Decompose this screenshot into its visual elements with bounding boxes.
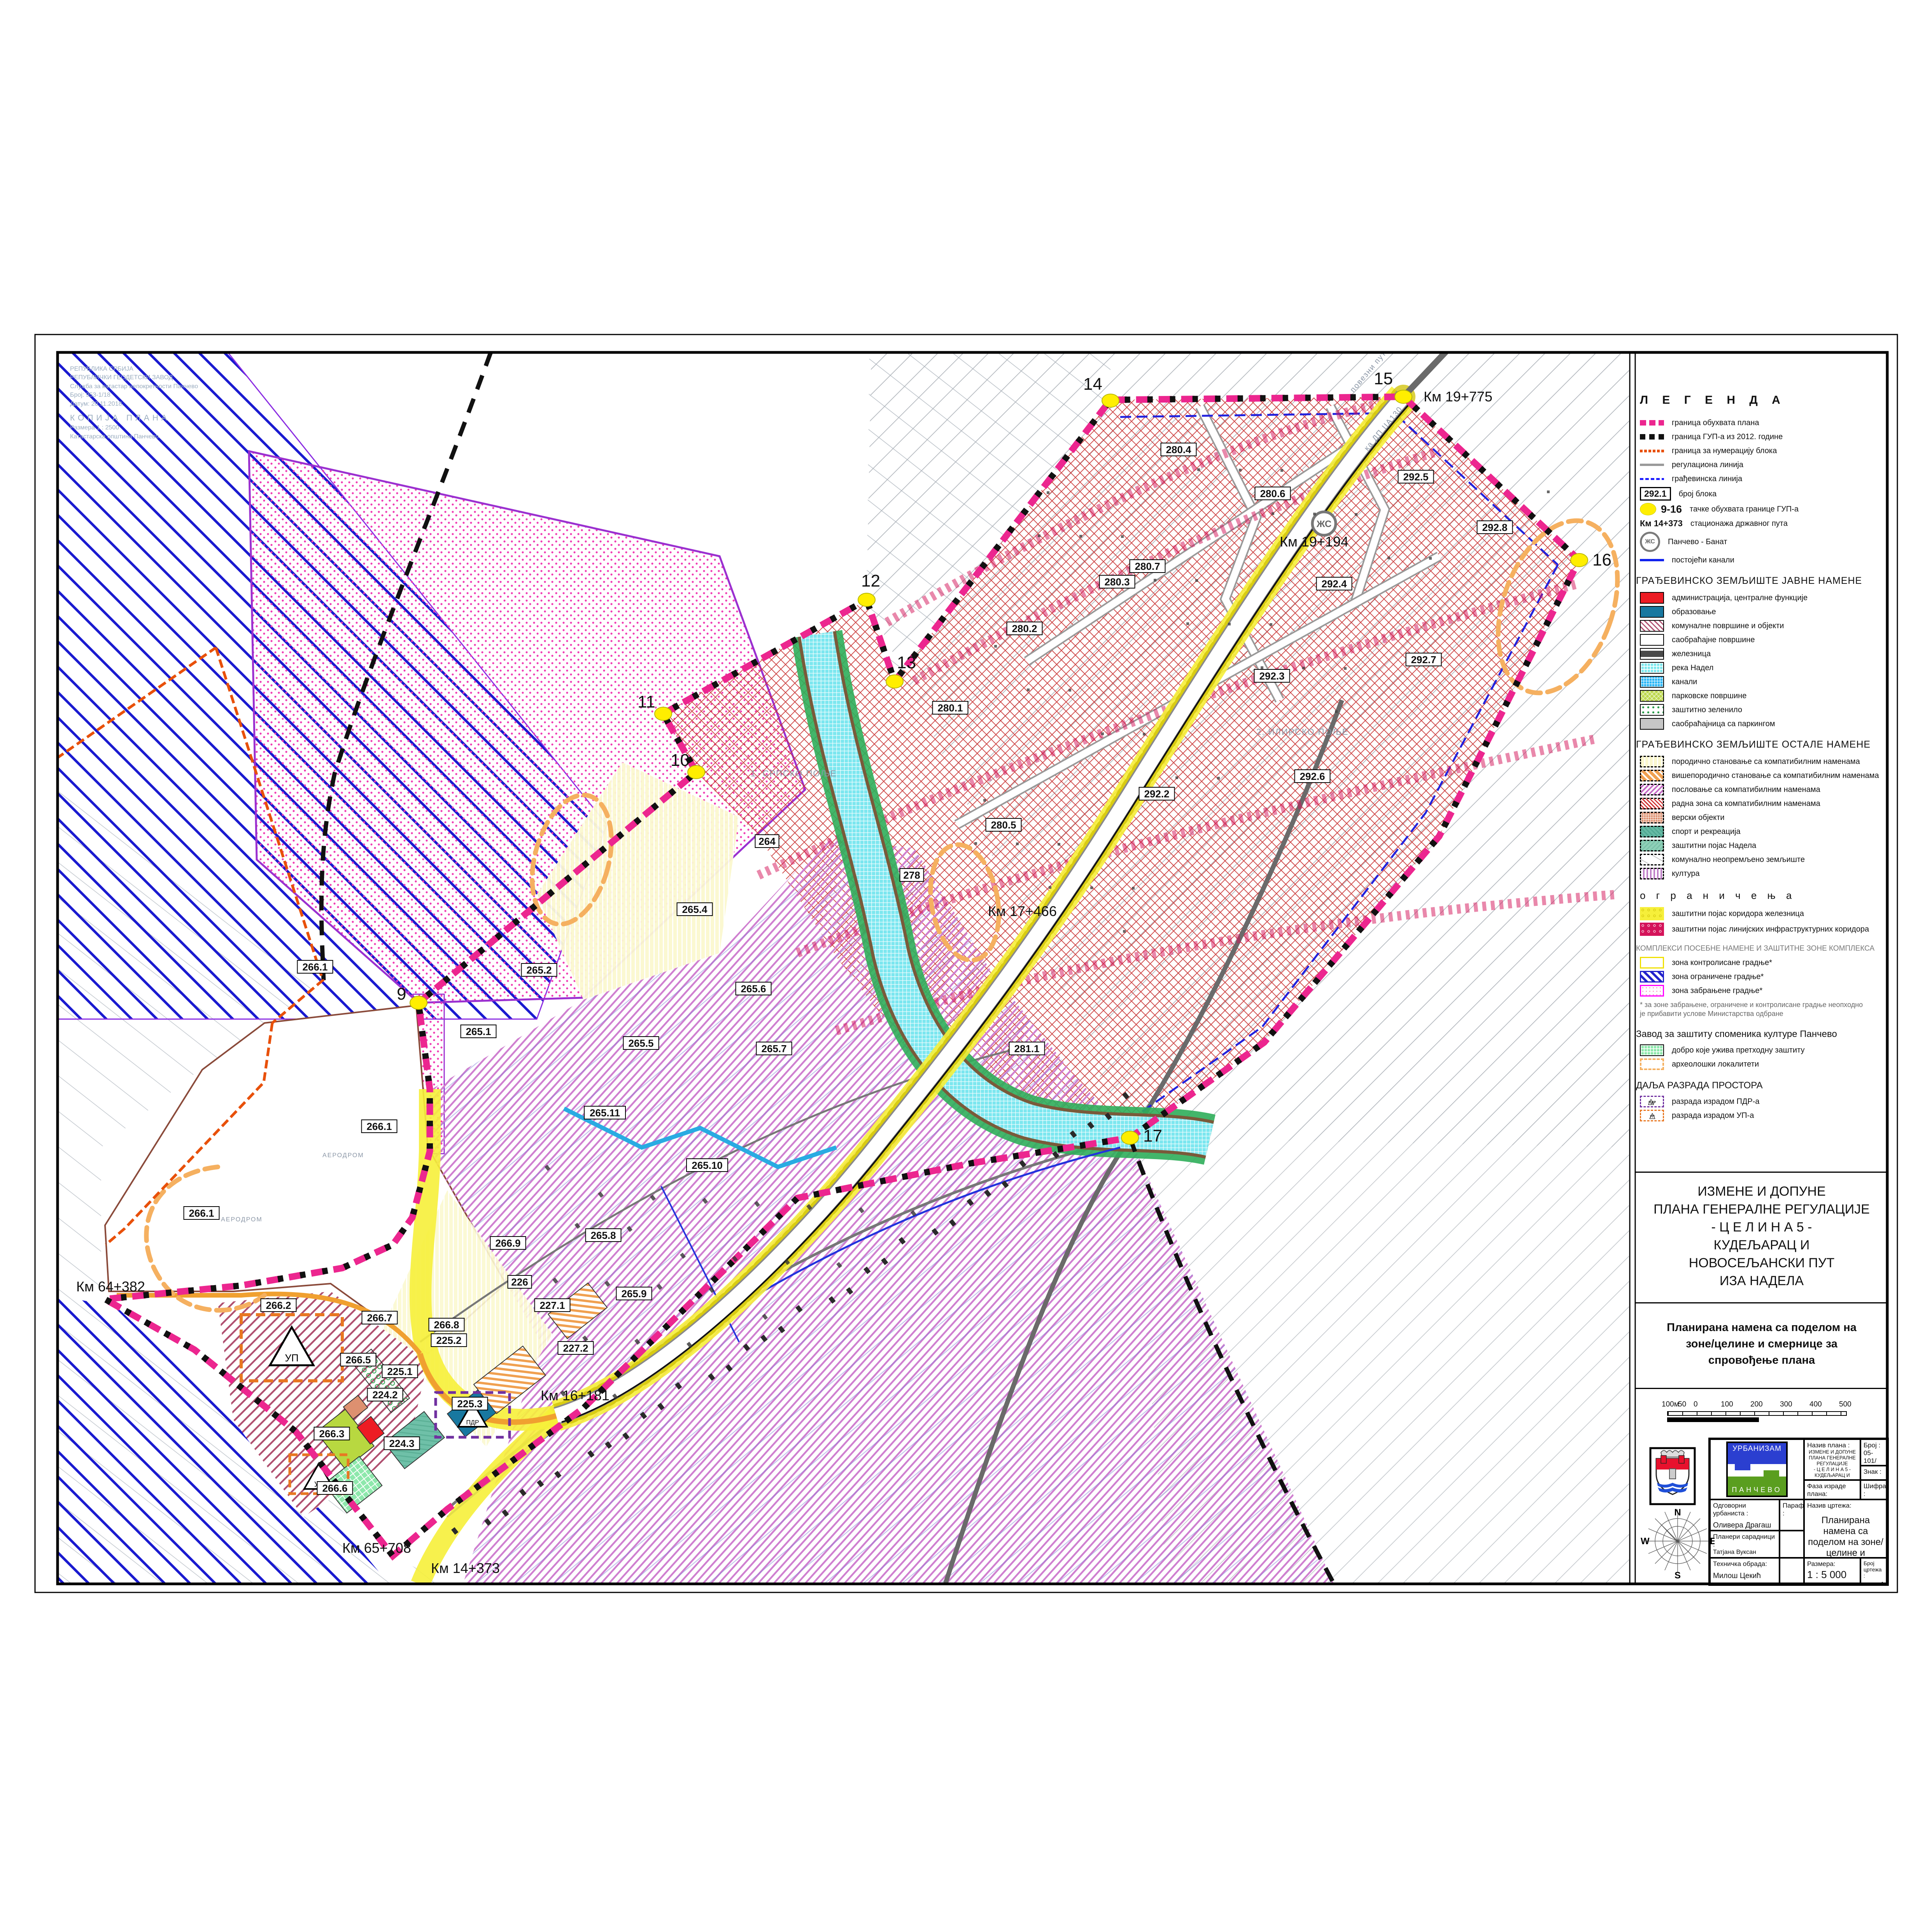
svg-text:292.4: 292.4 (1321, 578, 1347, 590)
legend-item-label: заштитни појас Надела (1672, 841, 1756, 850)
canals-swatch (1640, 676, 1664, 688)
legend-item-label: парковске површине (1672, 692, 1746, 700)
block-numbering-boundary-swatch (1640, 450, 1664, 452)
km-station-label: Км 19+775 (1424, 389, 1492, 405)
svg-text:266.9: 266.9 (495, 1237, 520, 1249)
svg-text:ЖС: ЖС (1316, 519, 1331, 529)
administration-swatch (1640, 592, 1664, 604)
forbidden-construction-zone-swatch (1640, 985, 1664, 997)
legend-swatch-7: Км 14+373 (1640, 518, 1683, 529)
communal-areas-swatch (1640, 620, 1664, 632)
legend-item-label: зона забрањене градње* (1672, 986, 1762, 995)
stamp-line: Служба за катастар непокретности Панчево (70, 382, 272, 391)
work-zone-swatch (1640, 798, 1664, 809)
legend-item-label: железница (1672, 650, 1711, 658)
block-label: 280.2 (1007, 622, 1042, 635)
plan-number: 05-101/ (1864, 1449, 1884, 1465)
area-label: АЕРОДРОМ (322, 1152, 364, 1159)
block-label: 292.5 (1398, 470, 1434, 483)
archaeological-sites-swatch (1640, 1058, 1664, 1070)
stamp-line: Катастарска општина Панчево (70, 433, 272, 441)
scale-bar-solid (1667, 1417, 1759, 1422)
legend-swatch-6 (1640, 503, 1656, 515)
block-label: 265.1 (461, 1025, 496, 1038)
legend-item: 292.1број блока (1640, 487, 1883, 501)
svg-text:224.3: 224.3 (389, 1438, 414, 1449)
technical-name: Милош Цекић (1713, 1572, 1761, 1580)
protective-greenery-swatch (1640, 704, 1664, 716)
svg-text:292.3: 292.3 (1259, 670, 1284, 682)
traffic-areas-swatch (1640, 634, 1664, 646)
scale-value: 1 : 5 000 (1807, 1569, 1857, 1581)
block-label: 227.1 (535, 1299, 570, 1312)
legend-item-label: река Надел (1672, 664, 1713, 672)
technical-cell: Техничка обрада: Милош Цекић инж.арх. (1710, 1558, 1780, 1584)
svg-text:17: 17 (1143, 1126, 1162, 1146)
plan-title-line: ИЗМЕНЕ И ДОПУНЕ (1640, 1182, 1883, 1200)
legend-item-label: администрација, централне функције (1672, 594, 1808, 602)
legend-item: заштитни појас коридора железница (1640, 907, 1883, 920)
svg-text:281.1: 281.1 (1014, 1043, 1039, 1054)
block-label: 265.2 (522, 963, 557, 976)
legend-item: радна зона са компатибилним наменама (1640, 798, 1883, 809)
svg-text:N: N (1674, 1507, 1681, 1518)
block-label: 292.6 (1295, 770, 1330, 783)
block-label: 226 (508, 1275, 532, 1288)
legend-item-label: заштитни појас коридора железница (1672, 909, 1804, 918)
block-label: 225.2 (431, 1334, 467, 1347)
family-housing-swatch (1640, 756, 1664, 767)
area-label: 2. ИЛИРСКО ПОЉЕ (1256, 727, 1349, 737)
legend-item-label: регулациона линија (1672, 461, 1743, 469)
svg-text:265.1: 265.1 (466, 1026, 491, 1037)
legend-item: парковске површине (1640, 690, 1883, 702)
legend-item: комуналне површине и објекти (1640, 620, 1883, 632)
legend-item: заштитни појас линијских инфраструктурни… (1640, 923, 1883, 936)
legend-item: култура (1640, 868, 1883, 879)
legend-item: пословање са компатибилним наменама (1640, 784, 1883, 795)
block-label: 292.4 (1317, 577, 1352, 590)
scale-label: 0 (1694, 1400, 1698, 1409)
svg-text:225.1: 225.1 (387, 1366, 412, 1377)
cadastral-stamp: РЕПУБЛИКА СРБИЈАРЕПУБЛИЧКИ ГЕОДЕТСКИ ЗАВ… (70, 365, 272, 441)
block-label: 292.8 (1477, 521, 1513, 534)
svg-text:266.7: 266.7 (367, 1312, 392, 1324)
svg-text:292.8: 292.8 (1482, 522, 1507, 533)
svg-text:265.7: 265.7 (761, 1043, 786, 1054)
legend-item: зона ограничене градње* (1640, 971, 1883, 983)
svg-text:9: 9 (397, 984, 406, 1004)
up-elaboration-swatch: △УП (1640, 1110, 1664, 1121)
legend-item: саобраћајница са паркингом (1640, 718, 1883, 730)
drawing-title-line: спровођење плана (1640, 1352, 1883, 1368)
legend-item-label: саобраћајне површине (1672, 636, 1755, 644)
gup-2012-boundary-swatch (1640, 434, 1664, 440)
svg-text:266.1: 266.1 (189, 1207, 214, 1219)
stamp-line: РЕПУБЛИЧКИ ГЕОДЕТСКИ ЗАВОД (70, 373, 272, 382)
scale-bar: 100м 50 0 100 200 300 400 500 (1667, 1400, 1850, 1431)
svg-text:11: 11 (638, 692, 655, 711)
legend-item-label: граница ГУП-а из 2012. године (1672, 433, 1783, 441)
legend-item: граница за нумерацију блока (1640, 445, 1883, 457)
block-label: 266.5 (341, 1353, 376, 1366)
legend-item-label: радна зона са компатибилним наменама (1672, 799, 1820, 808)
road-with-parking-swatch (1640, 718, 1664, 730)
logo-cell: УРБАНИЗАМ ПАНЧЕВО (1710, 1439, 1804, 1499)
plan-title-line: ИЗА НАДЕЛА (1640, 1272, 1883, 1290)
scale-label: 400 (1809, 1400, 1822, 1409)
block-label: 225.1 (382, 1365, 418, 1378)
znak-cell: Знак : (1860, 1466, 1887, 1480)
block-label: 265.11 (584, 1106, 625, 1119)
existing-canals-swatch (1640, 559, 1664, 561)
nadel-river-swatch (1640, 662, 1664, 674)
stamp-line: Датум: 20.11.2018. (70, 400, 272, 408)
svg-text:292.2: 292.2 (1144, 788, 1169, 800)
legend-item: археолошки локалитети (1640, 1058, 1883, 1070)
paraf-cell-2 (1780, 1531, 1804, 1558)
area-label: 1. СРПСКО ПОЉЕ (751, 769, 837, 778)
legend-section-title: ДАЉА РАЗРАДА ПРОСТОРА (1636, 1080, 1883, 1091)
legend-item: ЖСПанчево - Банат (1640, 532, 1883, 552)
svg-text:13: 13 (897, 653, 916, 672)
legend-item-label: зона ограничене градње* (1672, 972, 1764, 981)
sifra-cell: Шифра : (1860, 1480, 1887, 1499)
drawing-number-cell: Број цртежа : 4 (1860, 1558, 1887, 1584)
unequipped-communal-land-swatch (1640, 854, 1664, 865)
legend-item: граница ГУП-а из 2012. године (1640, 431, 1883, 443)
block-label: 281.1 (1009, 1042, 1045, 1055)
km-station-label: Км 19+194 (1280, 534, 1349, 550)
block-label: 265.9 (617, 1287, 652, 1300)
block-label: 265.5 (624, 1037, 659, 1049)
svg-text:266.1: 266.1 (302, 961, 328, 973)
svg-text:227.1: 227.1 (539, 1300, 565, 1311)
block-label: 266.8 (429, 1318, 464, 1331)
legend-item-label: тачке обухвата границе ГУП-а (1690, 505, 1799, 513)
svg-text:265.4: 265.4 (682, 904, 708, 915)
legend-item-label: Панчево - Банат (1668, 538, 1727, 546)
legend-item-label: комуналне површине и објекти (1672, 622, 1784, 630)
svg-text:225.2: 225.2 (436, 1335, 461, 1346)
svg-text:278: 278 (903, 869, 920, 881)
responsible-planner-name: Оливера Драгаш (1713, 1521, 1771, 1529)
block-label: 265.4 (677, 903, 713, 916)
block-label: 264 (755, 835, 779, 848)
svg-text:16: 16 (1592, 550, 1611, 569)
svg-text:280.6: 280.6 (1260, 488, 1285, 499)
area-label: АЕРОДРОМ (221, 1216, 263, 1223)
plan-title-line: - Ц Е Л И Н А 5 - (1640, 1218, 1883, 1236)
block-label: 265.10 (687, 1159, 728, 1172)
protected-heritage-swatch (1640, 1044, 1664, 1056)
legend-item-label: породично становање са компатибилним нам… (1672, 757, 1860, 766)
legend-item: железница (1640, 648, 1883, 660)
logo-top-text: УРБАНИЗАМ (1728, 1443, 1786, 1464)
svg-text:10: 10 (671, 751, 690, 770)
svg-text:280.3: 280.3 (1104, 576, 1130, 588)
legend-item-label: постојећи канали (1672, 556, 1734, 564)
svg-text:266.1: 266.1 (366, 1121, 392, 1132)
svg-text:280.1: 280.1 (937, 702, 963, 714)
legend-panel: Л Е Г Е Н Д А граница обухвата планагран… (1640, 394, 1883, 1124)
km-station-label: Км 16+181 (541, 1387, 610, 1403)
svg-text:280.2: 280.2 (1012, 623, 1037, 634)
svg-text:292.6: 292.6 (1300, 771, 1325, 782)
svg-text:265.9: 265.9 (621, 1288, 646, 1300)
logo-bottom-text: ПАНЧЕВО (1728, 1477, 1786, 1496)
panel-divider-line (1635, 1302, 1888, 1303)
km-station-label: Км 17+466 (988, 903, 1057, 919)
block-label: 278 (900, 869, 924, 881)
block-label: 266.1 (184, 1207, 219, 1219)
block-label: 280.1 (933, 701, 968, 714)
responsible-planner-cell: Одговорни урбаниста : Оливера Драгаш дип… (1710, 1499, 1780, 1531)
nadel-protective-belt-swatch (1640, 840, 1664, 851)
limited-construction-zone-swatch (1640, 971, 1664, 983)
urbanizam-pancevo-logo: УРБАНИЗАМ ПАНЧЕВО (1726, 1442, 1788, 1497)
phase-cell: Фаза израде плана: ПЛАН (1804, 1480, 1860, 1499)
plan-title-line: КУДЕЉАРАЦ И (1640, 1236, 1883, 1254)
legend-item-label: број блока (1679, 490, 1717, 498)
block-label: 225.3 (452, 1397, 488, 1410)
legend-item: постојећи канали (1640, 554, 1883, 566)
legend-item-label: разрада израдом УП-а (1672, 1111, 1754, 1120)
svg-text:292.7: 292.7 (1411, 654, 1436, 666)
svg-text:265.10: 265.10 (692, 1160, 723, 1171)
legend-item-label: пословање са компатибилним наменама (1672, 785, 1820, 794)
paraf-cell: Параф : (1780, 1499, 1804, 1531)
svg-text:265.5: 265.5 (628, 1037, 653, 1049)
legend-item-label: грађевинска линија (1672, 475, 1742, 483)
legend-item: зона забрањене градње* (1640, 985, 1883, 997)
railway-corridor-belt-swatch (1640, 907, 1664, 920)
stamp-line: Размера 1 : 2500 (70, 424, 272, 432)
block-label: 292.2 (1139, 787, 1175, 800)
legend-item: заштитни појас Надела (1640, 840, 1883, 851)
legend-item: канали (1640, 676, 1883, 688)
svg-text:280.4: 280.4 (1166, 444, 1191, 455)
legend-item: △ПДРразрада израдом ПДР-а (1640, 1096, 1883, 1107)
multifamily-housing-swatch (1640, 770, 1664, 781)
plan-sheet: { "stamp": {"lines": ["РЕПУБЛИКА СРБИЈА"… (0, 0, 1932, 1932)
svg-text:12: 12 (861, 571, 880, 590)
legend-item: Км 14+373стационажа државног пута (1640, 518, 1883, 529)
block-label: 265.8 (586, 1229, 621, 1242)
legend-item-label: комунално неопремљено земљиште (1672, 855, 1805, 864)
block-label: 224.2 (368, 1388, 403, 1401)
legend-section-title: ГРАЂЕВИНСКО ЗЕМЉИШТЕ ЈАВНЕ НАМЕНЕ (1636, 575, 1883, 587)
pdr-elaboration-swatch: △ПДР (1640, 1096, 1664, 1107)
plan-title-line: ПЛАНА ГЕНЕРАЛНЕ РЕГУЛАЦИЈЕ (1640, 1200, 1883, 1218)
svg-text:265.11: 265.11 (590, 1107, 620, 1119)
svg-text:292.5: 292.5 (1403, 471, 1428, 483)
plan-title-line: НОВОСЕЉАНСКИ ПУТ (1640, 1254, 1883, 1272)
legend-item: добро које ужива претходну заштиту (1640, 1044, 1883, 1056)
number-cell: Број : 05-101/ 2018 (1860, 1439, 1887, 1466)
legend-item: администрација, централне функције (1640, 592, 1883, 604)
svg-text:S: S (1675, 1570, 1681, 1580)
svg-text:225.3: 225.3 (457, 1398, 482, 1410)
legend-item-label: култура (1672, 869, 1700, 878)
block-label: 292.3 (1254, 669, 1290, 682)
scale-label: 100м (1662, 1400, 1679, 1409)
svg-text:ПДР: ПДР (466, 1419, 479, 1426)
block-label: 224.3 (384, 1437, 420, 1450)
legend-item-label: стационажа државног пута (1690, 519, 1788, 528)
block-label: 280.6 (1255, 487, 1291, 500)
svg-text:266.3: 266.3 (319, 1428, 344, 1440)
block-label: 227.2 (558, 1342, 594, 1354)
block-label: 280.7 (1130, 560, 1165, 573)
business-swatch (1640, 784, 1664, 795)
svg-text:266.8: 266.8 (434, 1319, 459, 1331)
panel-divider-line (1635, 1388, 1888, 1389)
legend-section-title: ГРАЂЕВИНСКО ЗЕМЉИШТЕ ОСТАЛЕ НАМЕНЕ (1636, 739, 1883, 750)
drawing-number-value: 4 (1864, 1580, 1884, 1584)
park-areas-swatch (1640, 690, 1664, 702)
drawing-title-line: зоне/целине и смернице за (1640, 1336, 1883, 1352)
legend-item: спорт и рекреација (1640, 826, 1883, 837)
legend-item-label: зона контролисане градње* (1672, 958, 1772, 967)
block-label: 266.2 (261, 1299, 296, 1312)
plan-boundary-swatch (1640, 420, 1664, 426)
block-label: 280.5 (986, 818, 1021, 831)
svg-text:266.2: 266.2 (266, 1300, 291, 1311)
legend-item: верски објекти (1640, 812, 1883, 823)
svg-text:224.2: 224.2 (372, 1389, 398, 1401)
svg-text:265.2: 265.2 (526, 964, 552, 976)
drawing-name-cell: Назив цртежа: Планирана намена са подело… (1804, 1499, 1887, 1558)
svg-text:227.2: 227.2 (563, 1342, 588, 1354)
legend-item-label: заштитно зеленило (1672, 706, 1742, 714)
block-label: 280.3 (1100, 575, 1135, 588)
block-label: 265.7 (757, 1042, 792, 1055)
legend-item: образовање (1640, 606, 1883, 618)
compass-rose: N S E W (1641, 1502, 1715, 1580)
legend-note: * за зоне забрањене, ограничене и контро… (1640, 1000, 1883, 1019)
scale-label: 100 (1721, 1400, 1733, 1409)
plan-name-label: Назив плана : (1807, 1442, 1857, 1449)
plan-name-cell: Назив плана : ИЗМЕНЕ И ДОПУНЕ ПЛАНА ГЕНЕ… (1804, 1439, 1860, 1480)
svg-text:УП: УП (285, 1352, 298, 1364)
sport-recreation-swatch (1640, 826, 1664, 837)
legend-item: регулациона линија (1640, 459, 1883, 471)
legend-item-label: граница обухвата плана (1672, 419, 1759, 427)
block-label: 266.1 (298, 960, 333, 973)
drawing-title-line: Планирана намена са поделом на (1640, 1319, 1883, 1336)
legend-item-label: граница за нумерацију блока (1672, 447, 1777, 455)
legend-item: породично становање са компатибилним нам… (1640, 756, 1883, 767)
empty-cell (1780, 1558, 1804, 1584)
railway-swatch (1640, 648, 1664, 660)
scale-label: 300 (1780, 1400, 1792, 1409)
legend-swatch-5: 292.1 (1640, 487, 1671, 501)
legend-item: саобраћајне површине (1640, 634, 1883, 646)
stamp-line: РЕПУБЛИКА СРБИЈА (70, 365, 272, 373)
legend-section-title: КОМПЛЕКСИ ПОСЕБНЕ НАМЕНЕ И ЗАШТИТНЕ ЗОНЕ… (1636, 944, 1883, 953)
legend-item: вишепородично становање са компатибилним… (1640, 770, 1883, 781)
scale-label: 200 (1750, 1400, 1763, 1409)
scale-label: 500 (1839, 1400, 1851, 1409)
drawing-title: Планирана намена са поделом на зоне/цели… (1640, 1319, 1883, 1368)
building-line-swatch (1640, 478, 1664, 480)
legend-item: заштитно зеленило (1640, 704, 1883, 716)
religious-objects-swatch (1640, 812, 1664, 823)
legend-item: зона контролисане градње* (1640, 957, 1883, 969)
scale-label: 50 (1678, 1400, 1686, 1409)
legend-item-label: образовање (1672, 608, 1716, 616)
block-label: 265.6 (736, 982, 771, 995)
legend-item-label: добро које ужива претходну заштиту (1672, 1046, 1804, 1054)
regulation-line-swatch (1640, 464, 1664, 466)
svg-text:226: 226 (511, 1276, 528, 1288)
map-content: ЖС УП УП ПДР (56, 281, 1639, 1584)
stamp-line: Број: 953-1/18 (70, 391, 272, 399)
legend-item: река Надел (1640, 662, 1883, 674)
legend-item: граница обухвата плана (1640, 417, 1883, 429)
svg-text:266.5: 266.5 (345, 1354, 371, 1366)
svg-text:264: 264 (758, 836, 776, 847)
controlled-construction-zone-swatch (1640, 957, 1664, 969)
legend-section-title: о г р а н и ч е њ а (1640, 890, 1883, 902)
planners-cell: Планери сарадници : Татјана Вуксан дипл.… (1710, 1531, 1780, 1558)
pancevo-coat-of-arms (1649, 1447, 1696, 1505)
block-label: 266.3 (314, 1427, 350, 1440)
svg-text:14: 14 (1083, 375, 1102, 394)
plan-title: ИЗМЕНЕ И ДОПУНЕ ПЛАНА ГЕНЕРАЛНЕ РЕГУЛАЦИ… (1640, 1182, 1883, 1290)
block-label: 266.1 (362, 1120, 397, 1133)
svg-text:W: W (1641, 1536, 1650, 1547)
block-label: 292.7 (1406, 653, 1442, 666)
legend-item-label: канали (1672, 678, 1697, 686)
block-label: 266.9 (490, 1237, 526, 1249)
block-label: 280.4 (1161, 443, 1196, 456)
block-label: 266.6 (317, 1482, 353, 1494)
scale-cell: Размера: 1 : 5 000 (1804, 1558, 1860, 1584)
legend-item-label: археолошки локалитети (1672, 1060, 1759, 1068)
legend-item: 9-16тачке обухвата границе ГУП-а (1640, 503, 1883, 515)
legend-item-label: спорт и рекреација (1672, 827, 1741, 836)
legend-title: Л Е Г Е Н Д А (1640, 394, 1883, 407)
svg-text:280.5: 280.5 (991, 819, 1016, 831)
legend-item-label: вишепородично становање са компатибилним… (1672, 771, 1879, 780)
legend-item-label: разрада израдом ПДР-а (1672, 1097, 1760, 1106)
logo-middle (1728, 1464, 1786, 1477)
legend-item: △УПразрада израдом УП-а (1640, 1110, 1883, 1121)
education-swatch (1640, 606, 1664, 618)
legend-swatch-8: ЖС (1640, 532, 1660, 552)
culture-swatch (1640, 868, 1664, 879)
legend-item-label: верски објекти (1672, 813, 1725, 822)
legend-item: грађевинска линија (1640, 473, 1883, 485)
block-label: 266.7 (362, 1311, 398, 1324)
km-station-label: Км 64+382 (76, 1279, 145, 1294)
svg-text:265.6: 265.6 (741, 983, 766, 995)
panel-divider-line (1635, 1172, 1888, 1173)
points-range: 9-16 (1661, 503, 1682, 515)
stamp-line: КОПИЈА ПЛАНА (70, 412, 272, 424)
svg-text:266.6: 266.6 (322, 1482, 347, 1494)
svg-text:15: 15 (1374, 369, 1393, 388)
km-station-label: Км 14+373 (431, 1560, 500, 1576)
infrastructure-corridor-belt-swatch (1640, 923, 1664, 936)
legend-item: комунално неопремљено земљиште (1640, 854, 1883, 865)
legend-item-label: саобраћајница са паркингом (1672, 720, 1775, 728)
svg-text:280.7: 280.7 (1135, 561, 1160, 572)
km-station-label: Км 65+708 (342, 1540, 411, 1556)
scale-bar-ruler (1667, 1411, 1847, 1416)
